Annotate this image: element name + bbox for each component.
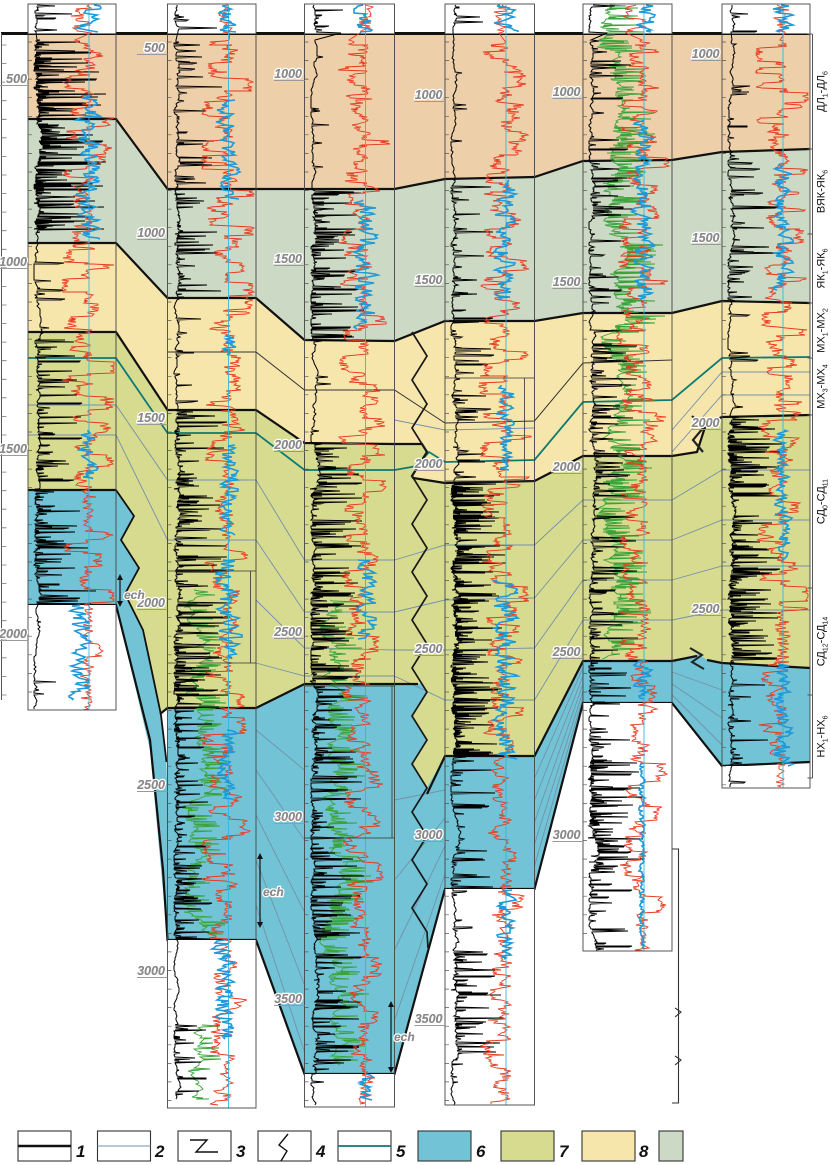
svg-text:2500: 2500 (552, 645, 581, 659)
svg-text:ech: ech (124, 588, 145, 602)
svg-text:2000: 2000 (552, 460, 581, 474)
svg-text:7: 7 (559, 1142, 570, 1161)
svg-text:4: 4 (315, 1142, 326, 1161)
svg-text:1000: 1000 (415, 88, 443, 102)
svg-text:5: 5 (396, 1142, 406, 1161)
svg-text:1000: 1000 (137, 226, 165, 240)
svg-text:1500: 1500 (0, 442, 27, 456)
svg-text:2500: 2500 (691, 602, 720, 616)
svg-text:1000: 1000 (274, 67, 302, 81)
svg-text:2500: 2500 (273, 625, 302, 639)
svg-text:3000: 3000 (137, 964, 165, 978)
svg-text:2000: 2000 (691, 416, 720, 430)
svg-text:500: 500 (6, 72, 27, 86)
svg-text:3500: 3500 (415, 1012, 443, 1026)
svg-text:3000: 3000 (415, 828, 443, 842)
svg-text:2000: 2000 (414, 457, 443, 471)
svg-text:ДЛ1-ДЛ6: ДЛ1-ДЛ6 (816, 71, 830, 112)
svg-text:1000: 1000 (0, 255, 27, 269)
svg-text:1: 1 (76, 1142, 85, 1161)
svg-text:3000: 3000 (274, 810, 302, 824)
svg-text:3: 3 (236, 1142, 246, 1161)
svg-text:ВЯК-ЯК6: ВЯК-ЯК6 (816, 170, 830, 213)
svg-text:1500: 1500 (415, 273, 443, 287)
svg-text:1500: 1500 (553, 275, 581, 289)
svg-text:8: 8 (639, 1142, 649, 1161)
svg-text:1500: 1500 (274, 252, 302, 266)
svg-text:2500: 2500 (136, 778, 165, 792)
svg-text:МХ3-МХ4: МХ3-МХ4 (816, 364, 830, 409)
svg-text:1000: 1000 (692, 47, 720, 61)
svg-text:ech: ech (394, 1030, 415, 1044)
svg-text:2500: 2500 (414, 642, 443, 656)
svg-text:ЯК1-ЯК6: ЯК1-ЯК6 (816, 248, 830, 288)
svg-text:1000: 1000 (553, 85, 581, 99)
svg-text:500: 500 (144, 41, 165, 55)
svg-text:2: 2 (154, 1142, 165, 1161)
svg-text:1500: 1500 (137, 411, 165, 425)
svg-text:НХ1-НХ6: НХ1-НХ6 (816, 715, 830, 757)
svg-text:3000: 3000 (553, 828, 581, 842)
svg-text:1500: 1500 (692, 231, 720, 245)
svg-text:МХ1-МХ2: МХ1-МХ2 (816, 308, 830, 353)
svg-text:3500: 3500 (274, 992, 302, 1006)
svg-text:2000: 2000 (273, 438, 302, 452)
svg-text:ech: ech (263, 885, 284, 899)
svg-text:2000: 2000 (0, 627, 27, 641)
svg-text:6: 6 (476, 1142, 486, 1161)
